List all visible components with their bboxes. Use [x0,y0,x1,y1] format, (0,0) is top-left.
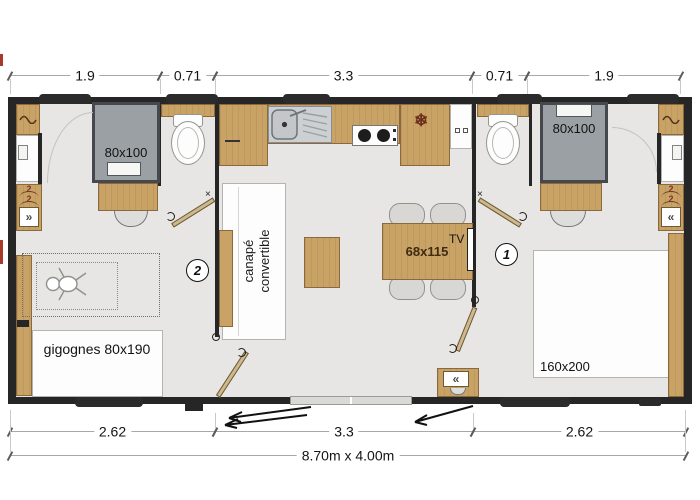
door-hinge [212,333,220,341]
coffee-table [304,237,340,288]
sofa-sideboard [219,230,233,327]
dim-label: 0.71 [169,67,206,83]
stove-knob [393,138,396,141]
kitchen-end-cabinet [450,104,472,149]
window [283,94,330,104]
fridge-snowflake-icon: ❄ [414,112,428,129]
extension-line [10,79,11,94]
window [500,397,570,407]
outer-wall-right [684,97,692,404]
washbasin [672,145,682,160]
shower-tray [107,162,141,176]
artifact-mark [0,54,3,66]
vanity-left [98,183,158,211]
door-handle [166,212,175,221]
tv-unit [467,228,474,271]
trundle-handle [17,320,29,327]
trundle-beds-label: gigognes 80x190 [44,341,151,357]
shower-size-label: 80x100 [105,145,148,160]
extension-line [472,79,473,94]
stove-burner [377,129,390,142]
towel-icon [662,112,682,124]
washbasin [18,145,28,160]
shower-size-label: 80x100 [553,121,596,136]
artifact-mark [0,240,3,264]
floor-plan: 1.9 0.71 3.3 0.71 1.9 [0,0,700,500]
entry-step [185,404,203,411]
window [166,94,218,104]
window [39,94,91,104]
room-badge-2: 2 [186,259,209,282]
double-bed-label: 160x200 [540,359,590,374]
baby-icon [44,264,90,304]
wall-stub [38,133,42,184]
outer-wall-left [8,97,16,404]
overall-size-label: 8.70m x 4.00m [297,447,400,463]
door-handle [237,348,246,357]
extension-line [685,410,686,452]
extension-line [215,79,216,94]
stove-knob [393,129,396,132]
door-hinge-mark: × [205,189,211,200]
extension-line [215,413,216,429]
door-hinge-mark: × [477,189,483,200]
window [627,94,679,104]
kitchen-sink [268,106,332,143]
door-handle [448,344,457,353]
luggage-rack-icon: « [661,207,681,227]
luggage-rack-icon: » [19,207,39,227]
headboard-right [668,233,684,397]
stove-burner [358,129,371,142]
dim-label: 3.3 [329,423,358,439]
dim-label: 2.62 [561,423,598,439]
wc-right-wall [529,104,532,186]
extension-line [160,79,161,94]
dim-label: 0.71 [481,67,518,83]
lamp-icon: « [443,371,469,387]
toilet-bowl [486,121,520,165]
dim-label: 1.9 [589,67,618,83]
vanity-right [540,183,602,211]
cabinet-knob [455,128,460,133]
cabinet-knob [463,128,468,133]
towel-icon [19,112,39,124]
hanger-icon: 2 [18,195,40,206]
window [497,94,542,104]
dim-label: 3.3 [329,67,358,83]
kitchen-cabinet-handle [225,140,240,142]
door-handle [518,212,527,221]
sofa-seam [238,187,239,336]
toilet-bowl [171,121,205,165]
extension-line [10,410,11,452]
extension-line [527,79,528,94]
room-badge-1: 1 [495,243,518,266]
kitchen-cabinet-left [219,104,268,166]
table-size-label: 68x115 [406,244,449,259]
vent [639,399,661,406]
tv-label: TV [449,232,464,246]
extension-line [473,413,474,429]
shower-tray [556,104,592,117]
sofa-label: canapé convertible [241,181,275,341]
hanger-icon: 2 [660,195,682,206]
door-hinge [471,296,479,304]
dim-label: 1.9 [70,67,99,83]
extension-line [680,79,681,94]
window [75,397,143,407]
dim-label: 2.62 [94,423,131,439]
